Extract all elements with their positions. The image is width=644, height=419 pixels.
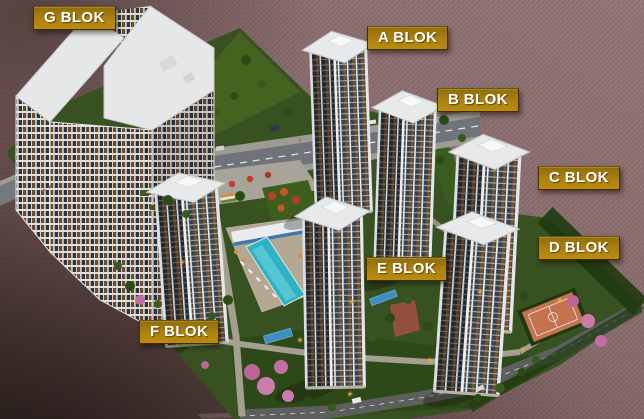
block-label-b[interactable]: B BLOK bbox=[437, 88, 519, 112]
block-label-d[interactable]: D BLOK bbox=[538, 236, 620, 260]
block-label-c[interactable]: C BLOK bbox=[538, 166, 620, 190]
block-label-a[interactable]: A BLOK bbox=[367, 26, 448, 50]
block-label-f[interactable]: F BLOK bbox=[139, 320, 219, 344]
tower-e[interactable] bbox=[294, 196, 373, 389]
site-plan-view: G BLOK A BLOK B BLOK C BLOK D BLOK E BLO… bbox=[0, 0, 644, 419]
block-label-e[interactable]: E BLOK bbox=[366, 257, 447, 281]
block-label-g[interactable]: G BLOK bbox=[33, 6, 116, 30]
site-render bbox=[0, 0, 644, 419]
